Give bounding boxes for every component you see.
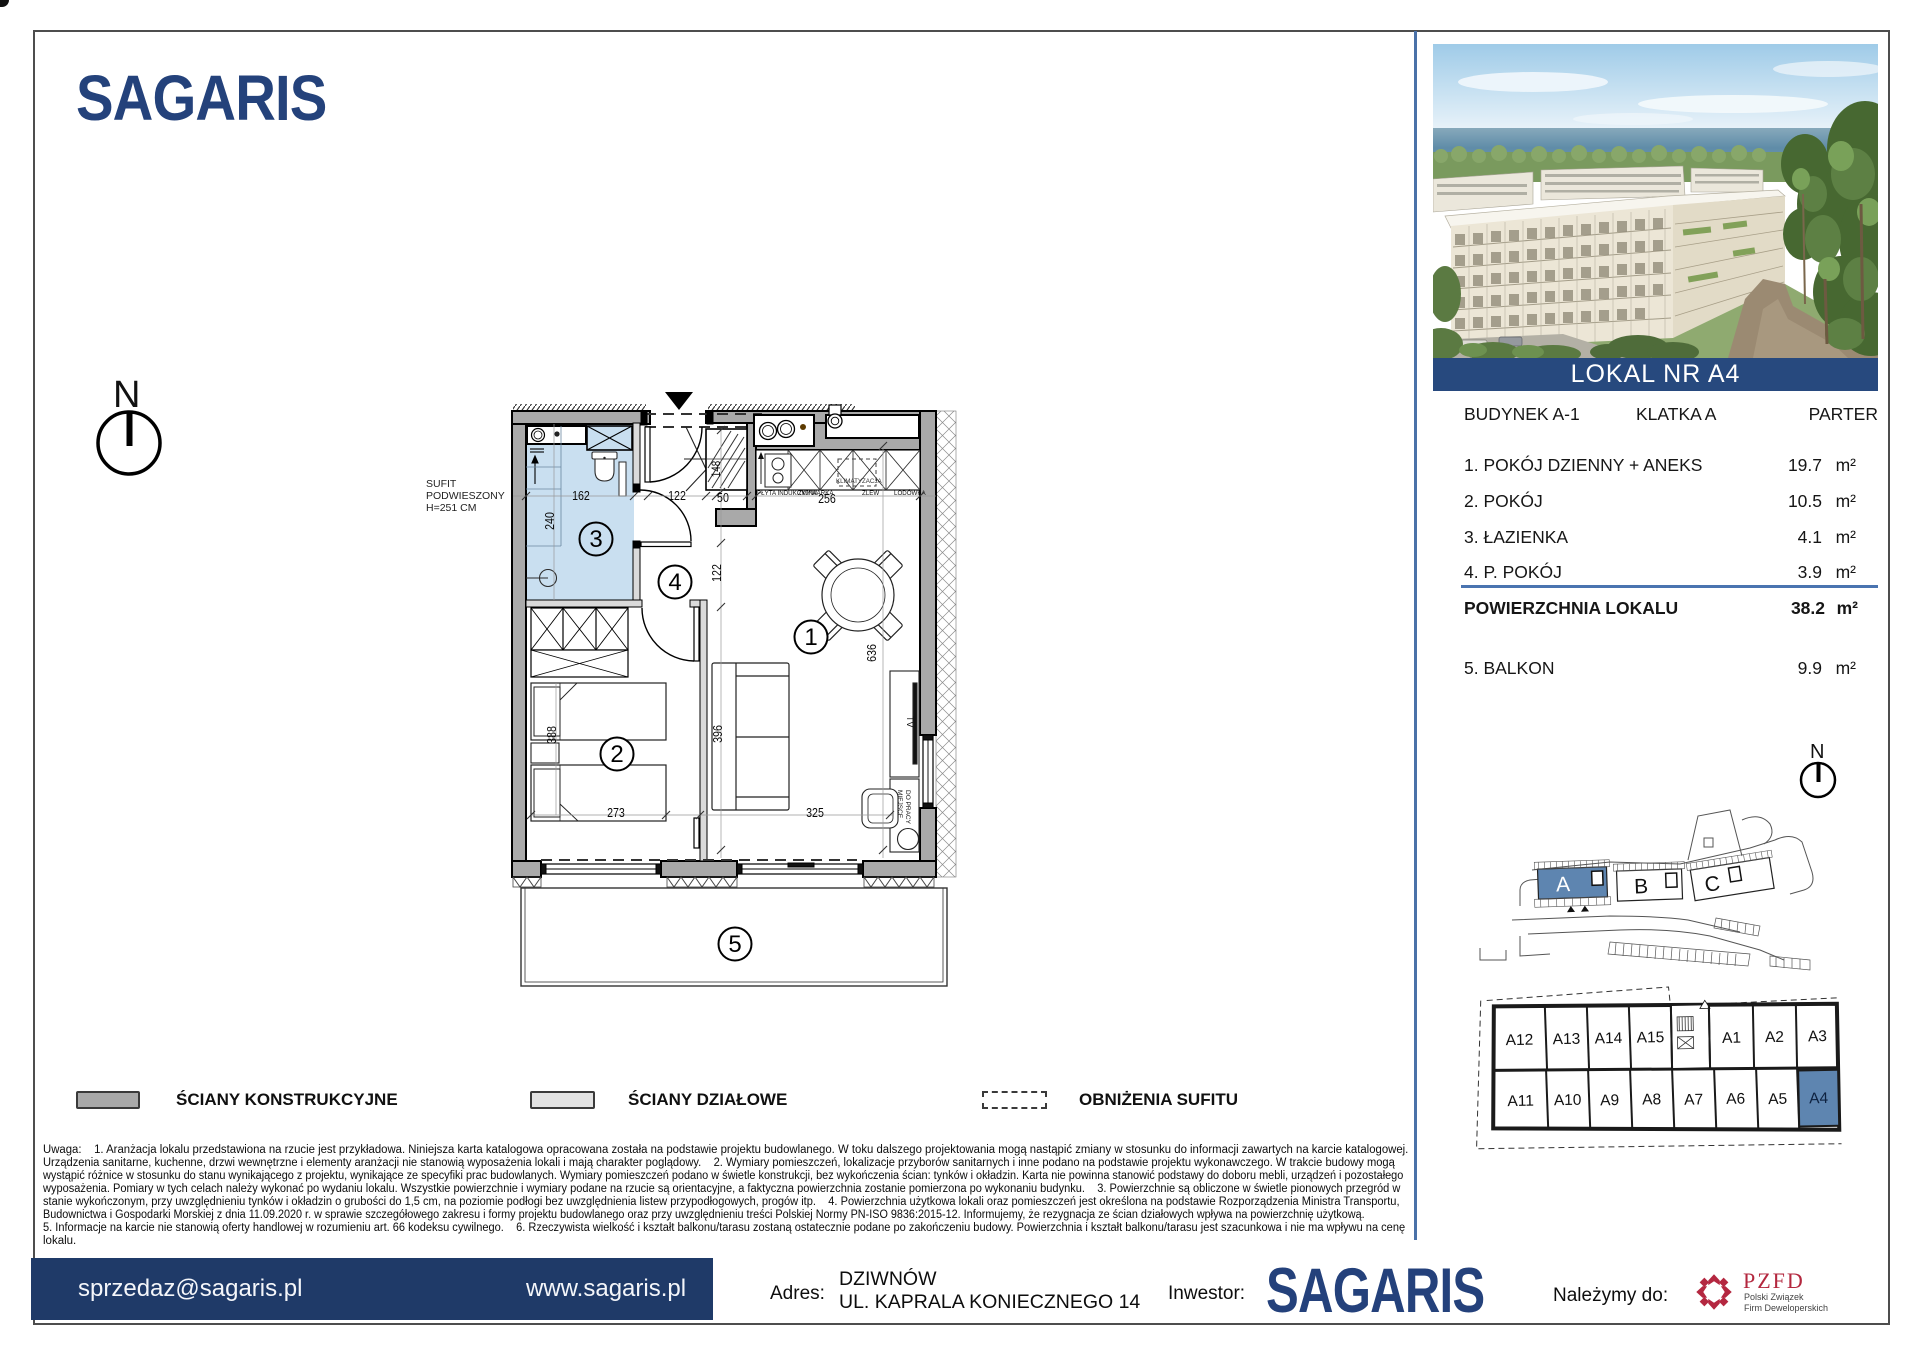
svg-text:388: 388 xyxy=(544,726,559,744)
svg-text:4: 4 xyxy=(668,569,681,596)
svg-text:A: A xyxy=(1556,873,1571,896)
svg-text:A13: A13 xyxy=(1553,1031,1581,1049)
svg-text:B: B xyxy=(1634,875,1649,898)
svg-text:A7: A7 xyxy=(1684,1091,1703,1108)
svg-text:273: 273 xyxy=(607,805,625,820)
svg-text:2: 2 xyxy=(610,741,623,768)
svg-text:A9: A9 xyxy=(1600,1092,1619,1109)
svg-text:5: 5 xyxy=(728,931,741,958)
svg-text:A12: A12 xyxy=(1506,1032,1534,1050)
svg-text:A14: A14 xyxy=(1595,1030,1623,1048)
svg-text:148: 148 xyxy=(710,461,723,477)
svg-text:A4: A4 xyxy=(1809,1090,1829,1107)
svg-text:KLIMATYZACJA: KLIMATYZACJA xyxy=(836,478,882,485)
svg-text:A6: A6 xyxy=(1726,1091,1745,1108)
svg-text:N: N xyxy=(113,374,140,416)
svg-text:122: 122 xyxy=(668,488,686,503)
svg-text:A11: A11 xyxy=(1507,1093,1534,1111)
svg-text:A8: A8 xyxy=(1642,1091,1661,1108)
svg-text:240: 240 xyxy=(542,512,557,530)
svg-text:SUFIT: SUFIT xyxy=(426,478,457,490)
svg-text:A15: A15 xyxy=(1637,1029,1665,1047)
svg-text:A1: A1 xyxy=(1722,1030,1741,1047)
svg-text:396: 396 xyxy=(710,725,725,743)
svg-text:DO PRACY: DO PRACY xyxy=(904,790,911,825)
svg-text:MIEJSCE: MIEJSCE xyxy=(896,790,903,819)
svg-text:3: 3 xyxy=(589,526,602,553)
svg-text:50: 50 xyxy=(717,490,729,505)
svg-text:TV: TV xyxy=(905,716,915,728)
svg-text:A10: A10 xyxy=(1554,1092,1582,1110)
svg-text:162: 162 xyxy=(572,488,590,503)
svg-text:PODWIESZONY: PODWIESZONY xyxy=(426,490,505,502)
svg-text:N: N xyxy=(1810,741,1824,763)
svg-text:636: 636 xyxy=(864,644,879,662)
svg-text:122: 122 xyxy=(709,564,724,582)
svg-text:H=251 CM: H=251 CM xyxy=(426,502,476,514)
svg-text:A2: A2 xyxy=(1765,1029,1784,1046)
svg-text:256: 256 xyxy=(818,491,836,506)
svg-text:325: 325 xyxy=(806,805,824,820)
svg-text:1: 1 xyxy=(804,624,817,651)
svg-text:A5: A5 xyxy=(1768,1091,1787,1108)
svg-text:A3: A3 xyxy=(1808,1028,1827,1045)
